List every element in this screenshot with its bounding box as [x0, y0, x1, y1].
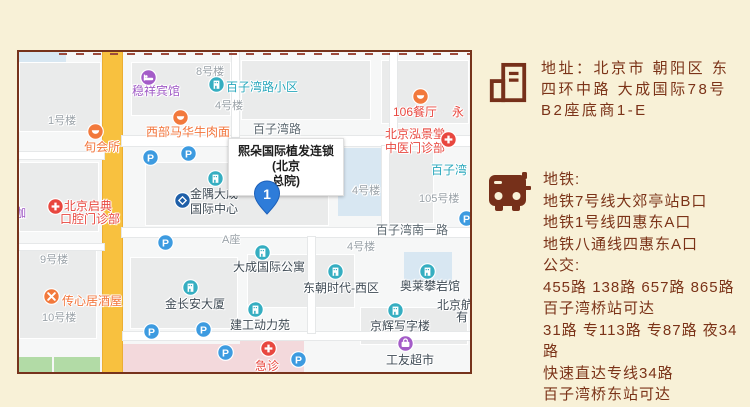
poi-hotel-icon[interactable]: [140, 69, 157, 86]
poi-restaurant-icon[interactable]: [412, 88, 429, 105]
parking-icon[interactable]: P: [180, 145, 197, 162]
map-label: 永: [452, 106, 464, 119]
map-road: [17, 244, 104, 250]
map-road: [390, 50, 397, 137]
page: 1号楼8号楼4号楼4号楼105号楼4号楼9号楼10号楼A座百子湾路百子湾南一路百…: [0, 0, 750, 407]
poi-building-icon[interactable]: [254, 244, 271, 261]
map-road: [382, 146, 389, 229]
map-label: 10号楼: [42, 312, 76, 324]
map-label: 国际中心: [190, 203, 238, 216]
transit-line: 快速直达专线34路: [543, 363, 745, 385]
bus-icon: [487, 171, 533, 218]
transit-line: 地铁:: [543, 169, 745, 191]
map-label: 传心居酒屋: [62, 295, 122, 308]
map-label: 1号楼: [48, 115, 76, 127]
address-section: 地址：北京市 朝阳区 东四环中路 大成国际78号B2座底商1-E: [487, 58, 729, 121]
parking-icon[interactable]: P: [157, 234, 174, 251]
map-label: 4号楼: [347, 241, 375, 253]
map-label: 西部马华牛肉面: [146, 126, 230, 139]
map-label: 中医门诊部: [385, 142, 445, 155]
building-icon: [487, 61, 529, 110]
map-label: A座: [222, 234, 240, 246]
poi-hospital-icon[interactable]: [260, 340, 277, 357]
map-label: 百子湾南一路: [376, 224, 448, 237]
rail-dashed-line: [59, 53, 470, 55]
map-label: 急诊: [255, 360, 279, 373]
address-line: B2座底商1-E: [541, 100, 729, 121]
address-line: 地址：北京市 朝阳区 东: [541, 58, 729, 79]
svg-text:P: P: [147, 326, 154, 338]
map-container[interactable]: 1号楼8号楼4号楼4号楼105号楼4号楼9号楼10号楼A座百子湾路百子湾南一路百…: [17, 50, 472, 374]
svg-text:P: P: [161, 237, 168, 249]
transit-line: 地铁7号线大郊亭站B口: [543, 191, 745, 213]
map-label: 稳祥宾馆: [132, 85, 180, 98]
map-road: [123, 332, 470, 340]
map-label: 大成国际公寓: [233, 261, 305, 274]
map-label: 东朝时代-西区: [303, 282, 379, 295]
parking-icon[interactable]: P: [143, 323, 160, 340]
parking-icon[interactable]: P: [290, 351, 307, 368]
map-label: 105号楼: [419, 193, 459, 205]
transit-line: 公交:: [543, 255, 745, 277]
infobox-line: 总院): [233, 174, 339, 189]
map-infobox[interactable]: 熙朵国际植发连锁(北京 总院): [228, 138, 344, 196]
map-label: 奥莱攀岩馆: [400, 280, 460, 293]
map-label: 有: [456, 311, 468, 324]
map-green-block: [54, 357, 100, 372]
svg-text:P: P: [146, 152, 153, 164]
poi-hospital-icon[interactable]: [440, 131, 457, 148]
map-label: 咖: [17, 207, 26, 220]
map-label: 9号楼: [40, 254, 68, 266]
map-label: 4号楼: [352, 185, 380, 197]
transit-line: 百子湾桥站可达: [543, 298, 745, 320]
map-label: 京辉写字楼: [370, 320, 430, 333]
poi-building-icon[interactable]: [327, 263, 344, 280]
map-green-block: [18, 357, 52, 372]
transit-text: 地铁:地铁7号线大郊亭站B口地铁1号线四惠东A口地铁八通线四惠东A口公交:455…: [543, 169, 745, 406]
transit-line: 455路 138路 657路 865路: [543, 277, 745, 299]
map-label: 口腔门诊部: [60, 213, 120, 226]
pin-icon: 1: [253, 180, 281, 216]
infobox-line: 熙朵国际植发连锁(北京: [233, 144, 339, 174]
poi-building-icon[interactable]: [208, 76, 225, 93]
poi-shop-icon[interactable]: [397, 335, 414, 352]
map-label: 工友超市: [386, 354, 434, 367]
poi-building-icon[interactable]: [247, 301, 264, 318]
poi-izakaya-icon[interactable]: [43, 288, 60, 305]
map-label: 旬会所: [84, 141, 120, 154]
poi-restaurant-icon[interactable]: [87, 123, 104, 140]
transit-line: 地铁八通线四惠东A口: [543, 234, 745, 256]
address-line: 四环中路 大成国际78号: [541, 79, 729, 100]
parking-icon[interactable]: P: [458, 210, 473, 227]
svg-text:P: P: [462, 213, 469, 225]
parking-icon[interactable]: P: [142, 149, 159, 166]
location-pin[interactable]: 1: [253, 180, 281, 216]
poi-building-icon[interactable]: [182, 279, 199, 296]
map-label: 金长安大厦: [165, 298, 225, 311]
svg-text:P: P: [199, 324, 206, 336]
svg-text:P: P: [221, 347, 228, 359]
map-building-block: [384, 150, 434, 224]
poi-restaurant-icon[interactable]: [172, 109, 189, 126]
map-label: 百子湾路小区: [226, 81, 298, 94]
poi-building-icon[interactable]: [419, 263, 436, 280]
map-label: 106餐厅: [393, 106, 437, 119]
map-label: 北京泓景堂: [385, 128, 445, 141]
parking-icon[interactable]: P: [217, 344, 234, 361]
address-text: 地址：北京市 朝阳区 东四环中路 大成国际78号B2座底商1-E: [541, 58, 729, 121]
transit-section: 地铁:地铁7号线大郊亭站B口地铁1号线四惠东A口地铁八通线四惠东A口公交:455…: [487, 169, 745, 406]
poi-building-icon[interactable]: [387, 302, 404, 319]
poi-hospital-icon[interactable]: [47, 198, 64, 215]
parking-icon[interactable]: P: [195, 321, 212, 338]
bank-icon[interactable]: [174, 192, 191, 209]
map-label: 4号楼: [215, 100, 243, 112]
map-label: 百子湾路: [253, 123, 301, 136]
map-label: 百子湾: [431, 164, 467, 177]
transit-line: 百子湾桥东站可达: [543, 384, 745, 406]
map-label: 建工动力苑: [230, 319, 290, 332]
svg-text:P: P: [184, 148, 191, 160]
svg-text:P: P: [294, 354, 301, 366]
poi-building-icon[interactable]: [207, 170, 224, 187]
map-water-block: [338, 148, 382, 216]
transit-line: 31路 专113路 专87路 夜34路: [543, 320, 745, 363]
svg-text:1: 1: [263, 186, 271, 202]
transit-line: 地铁1号线四惠东A口: [543, 212, 745, 234]
